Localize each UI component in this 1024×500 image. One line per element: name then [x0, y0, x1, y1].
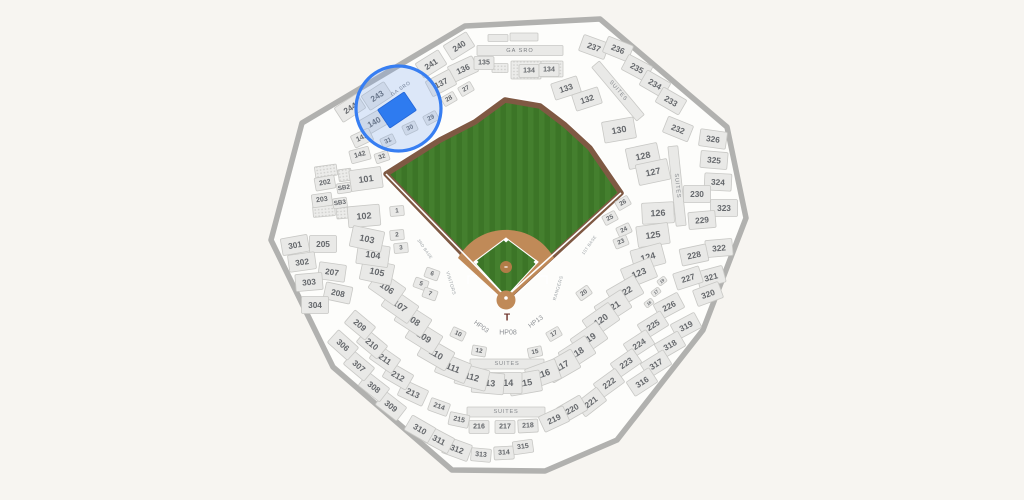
home-plate [504, 296, 508, 300]
svg-text:134: 134 [543, 67, 555, 74]
section-126[interactable]: 126 [641, 202, 674, 225]
section-304[interactable]: 304 [302, 297, 329, 314]
suites-label-lower-2[interactable]: SUITES [493, 409, 518, 415]
section-125[interactable]: 125 [636, 222, 671, 247]
section-325[interactable]: 325 [700, 150, 728, 169]
section-134[interactable]: 134 [519, 65, 539, 78]
section-2[interactable]: 2 [390, 229, 405, 240]
section-230[interactable]: 230 [684, 186, 711, 203]
section-322[interactable]: 322 [705, 238, 733, 257]
section-hp08[interactable]: HP08 [499, 330, 517, 337]
svg-text:126: 126 [650, 208, 666, 219]
section-101[interactable]: 101 [349, 166, 384, 191]
section-326[interactable]: 326 [698, 129, 727, 150]
section-134[interactable]: 134 [539, 64, 559, 77]
svg-text:205: 205 [316, 239, 330, 249]
svg-text:325: 325 [707, 154, 722, 165]
ga-sro-outfield-bar-label[interactable]: GA SRO [506, 48, 533, 54]
svg-text:326: 326 [705, 133, 720, 145]
section-313[interactable]: 313 [470, 448, 491, 463]
svg-text:314: 314 [498, 449, 510, 457]
stadium-map-page: 2402411361372728293031322432441401411421… [0, 0, 1024, 500]
section-sb2[interactable]: SB2 [336, 182, 351, 194]
svg-text:101: 101 [358, 173, 374, 185]
svg-text:303: 303 [302, 276, 317, 287]
section-303[interactable]: 303 [295, 272, 323, 291]
svg-text:302: 302 [294, 256, 309, 268]
svg-text:322: 322 [712, 242, 727, 253]
svg-text:134: 134 [523, 68, 535, 75]
section-229[interactable]: 229 [688, 210, 716, 229]
svg-text:207: 207 [324, 266, 339, 278]
section-315[interactable]: 315 [512, 439, 534, 455]
section-217[interactable]: 217 [495, 421, 515, 434]
svg-text:135: 135 [478, 60, 490, 67]
seat-map-svg: 2402411361372728293031322432441401411421… [0, 0, 1024, 500]
home-plate-circle [497, 291, 516, 310]
svg-text:218: 218 [522, 422, 534, 430]
section-302[interactable]: 302 [287, 252, 316, 273]
svg-text:216: 216 [473, 424, 485, 431]
svg-text:102: 102 [356, 210, 372, 221]
svg-text:217: 217 [499, 424, 511, 431]
section-3[interactable]: 3 [394, 242, 409, 253]
section-218[interactable]: 218 [518, 419, 539, 433]
section-216[interactable]: 216 [469, 421, 489, 434]
section-1[interactable]: 1 [390, 205, 405, 216]
concourse-block [510, 33, 538, 41]
svg-text:125: 125 [645, 229, 661, 241]
suites-label-lower-1[interactable]: SUITES [494, 361, 519, 367]
svg-text:313: 313 [475, 451, 487, 459]
section-sb3[interactable]: SB3 [332, 197, 347, 209]
svg-text:230: 230 [690, 189, 704, 199]
svg-text:324: 324 [711, 177, 726, 188]
section-12[interactable]: 12 [471, 345, 487, 357]
section-314[interactable]: 314 [494, 446, 515, 460]
svg-text:304: 304 [308, 300, 322, 310]
section-102[interactable]: 102 [347, 204, 381, 228]
section-205[interactable]: 205 [310, 236, 337, 253]
map-root: 2402411361372728293031322432441401411421… [271, 19, 746, 471]
svg-text:323: 323 [717, 203, 731, 213]
team-logo: T [504, 313, 510, 324]
section-135[interactable]: 135 [474, 57, 494, 70]
section-203[interactable]: 203 [311, 192, 333, 208]
concourse-block [488, 35, 508, 42]
svg-text:229: 229 [695, 214, 710, 225]
